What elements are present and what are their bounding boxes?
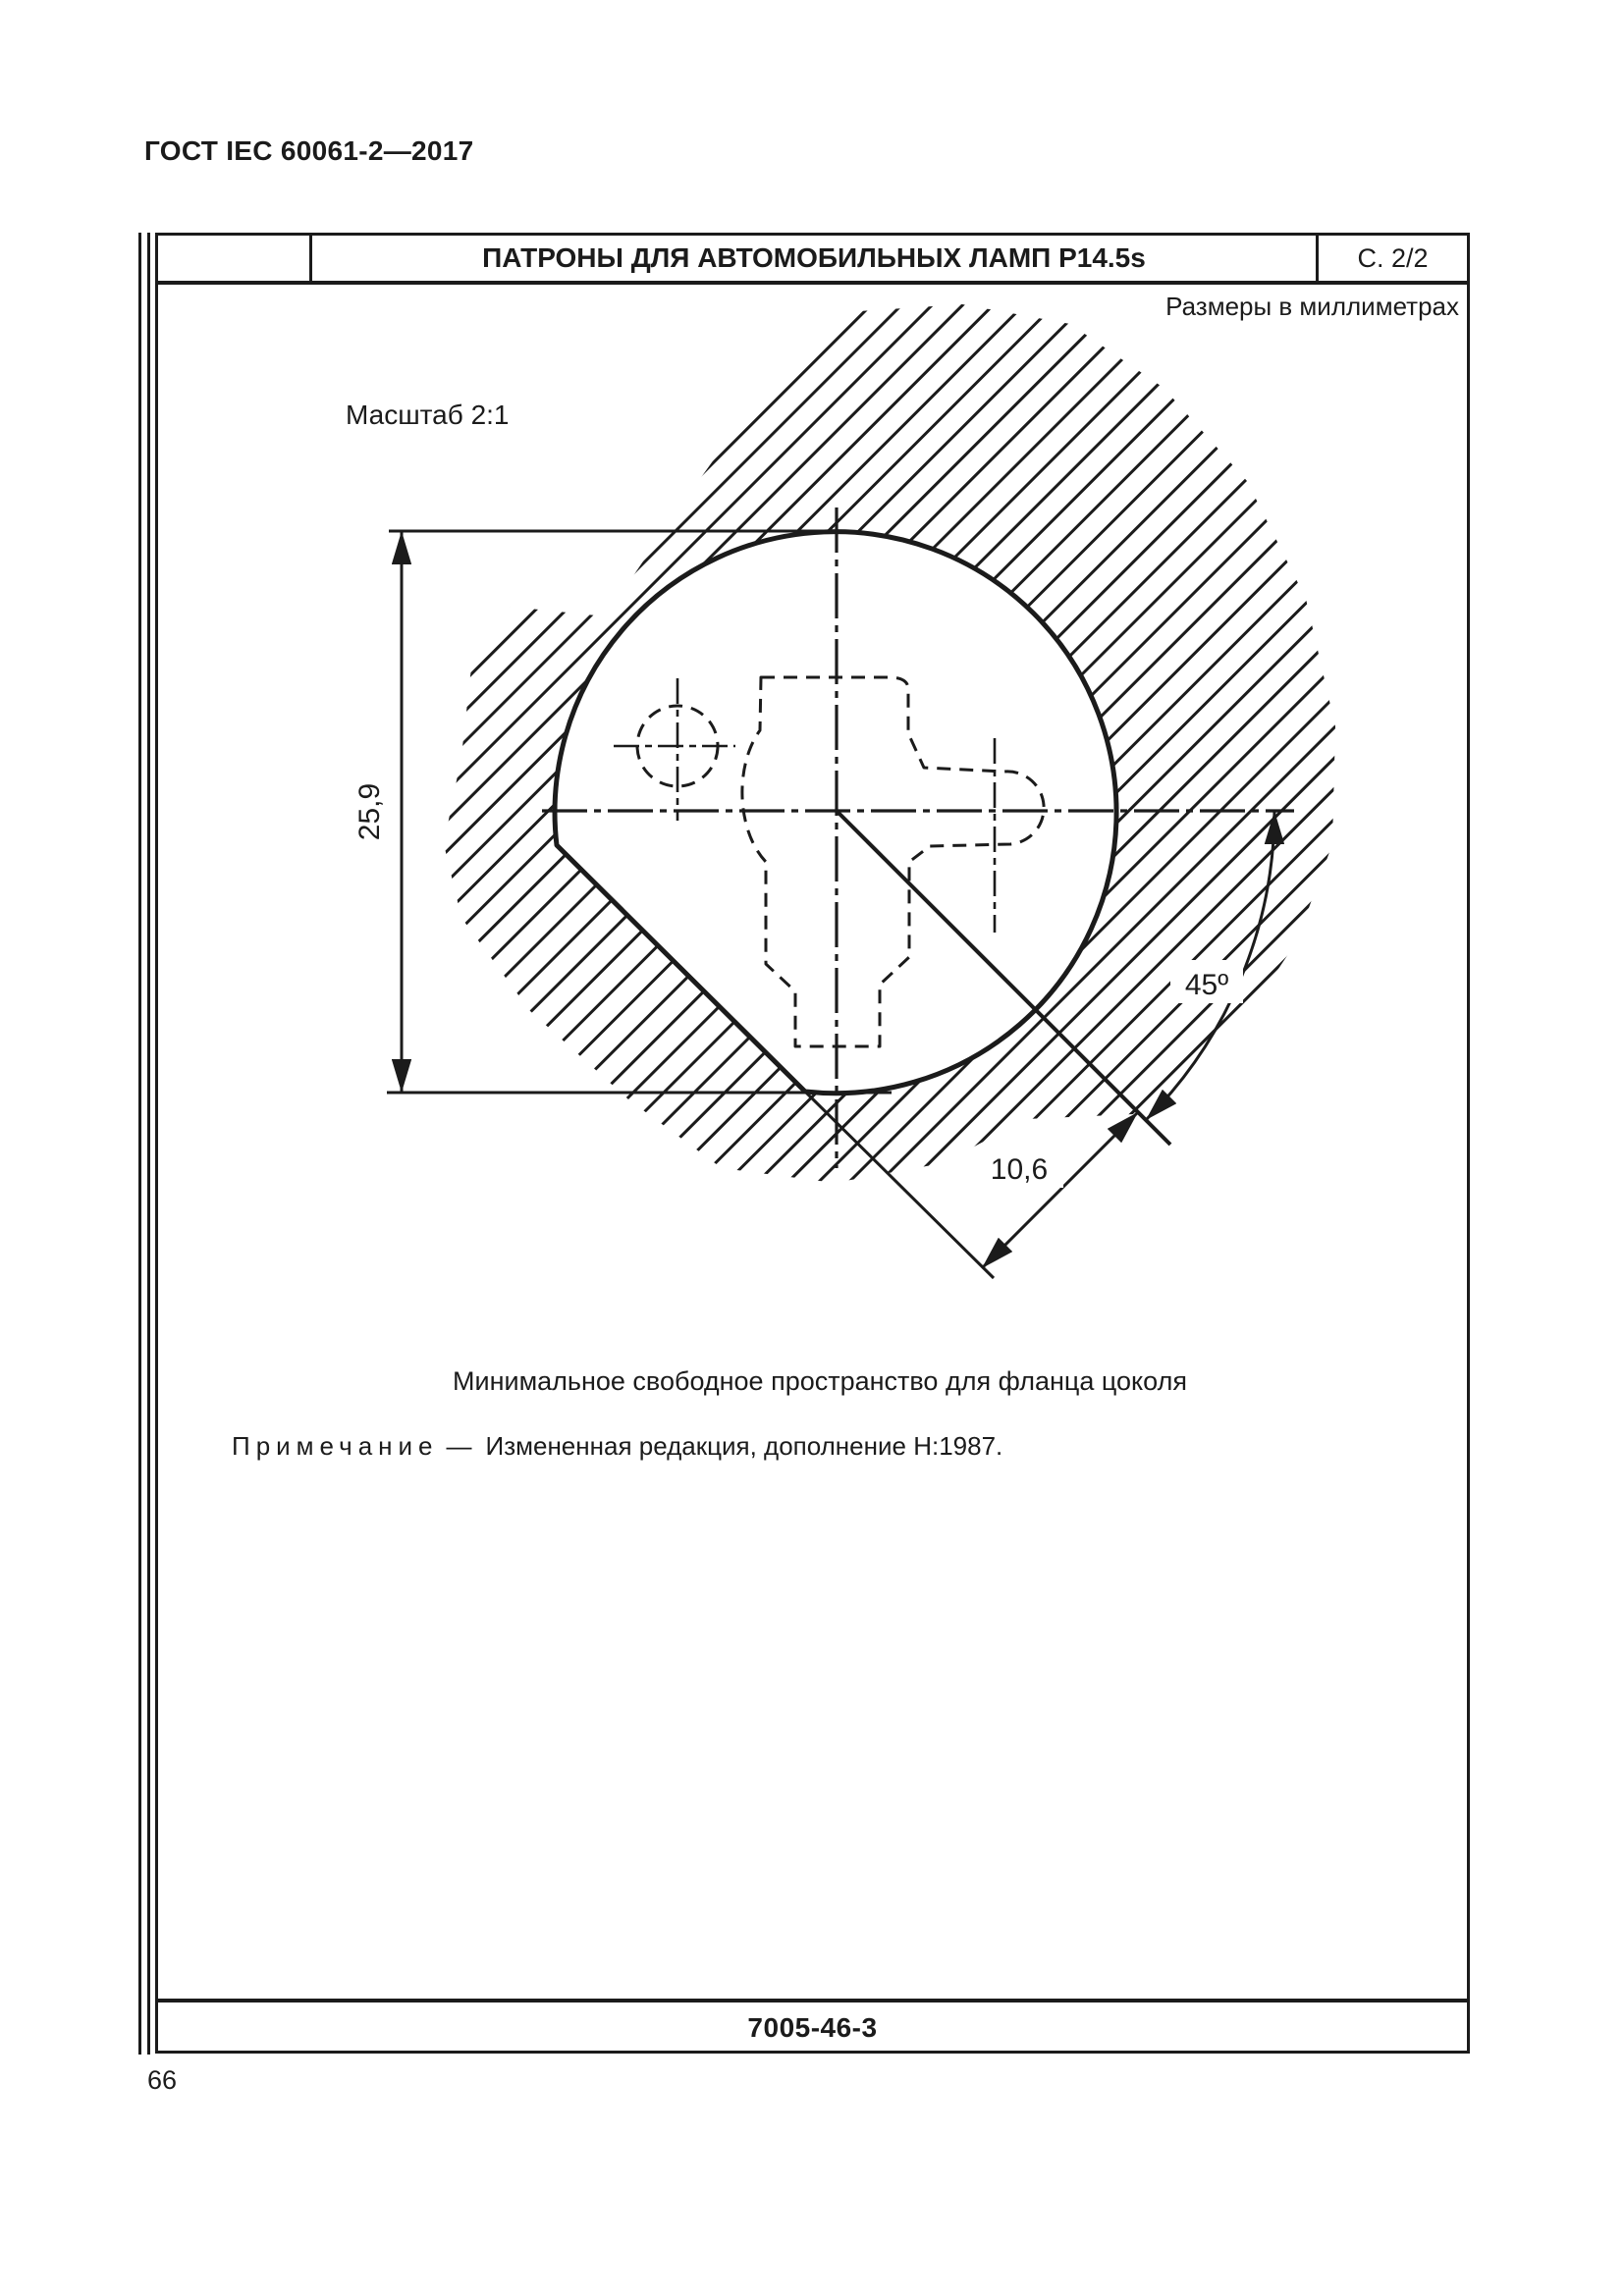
dimension-line-flat-offset — [982, 1112, 1138, 1268]
sheet-header-row: ПАТРОНЫ ДЛЯ АВТОМОБИЛЬНЫХ ЛАМП P14.5s С.… — [155, 233, 1470, 285]
left-double-rule-inner — [147, 233, 150, 2055]
document-page: { "page": { "standard_ref": "ГОСТ IEC 60… — [0, 0, 1624, 2296]
drawing-code: 7005-46-3 — [747, 2012, 877, 2044]
standard-reference: ГОСТ IEC 60061-2—2017 — [144, 135, 474, 167]
dimension-label-angle: 45º — [1185, 969, 1228, 1001]
header-empty-cell — [158, 236, 312, 281]
sheet-number: С. 2/2 — [1316, 236, 1467, 281]
note-label: Примечание — [232, 1431, 439, 1461]
left-double-rule-outer — [138, 233, 141, 2055]
page-number: 66 — [147, 2065, 177, 2096]
note-text: Измененная редакция, дополнение Н:1987. — [486, 1431, 1003, 1461]
dimension-label-height: 25,9 — [353, 783, 386, 840]
sheet-footer-row: 7005-46-3 — [155, 1999, 1470, 2054]
note: Примечание—Измененная редакция, дополнен… — [232, 1431, 1002, 1462]
sheet-title: ПАТРОНЫ ДЛЯ АВТОМОБИЛЬНЫХ ЛАМП P14.5s — [312, 236, 1316, 281]
note-dash: — — [439, 1431, 486, 1461]
figure-caption: Минимальное свободное пространство для ф… — [324, 1366, 1316, 1397]
dimension-label-flat-offset: 10,6 — [991, 1153, 1048, 1186]
technical-drawing: 25,9 45º 10,6 — [324, 280, 1424, 1301]
